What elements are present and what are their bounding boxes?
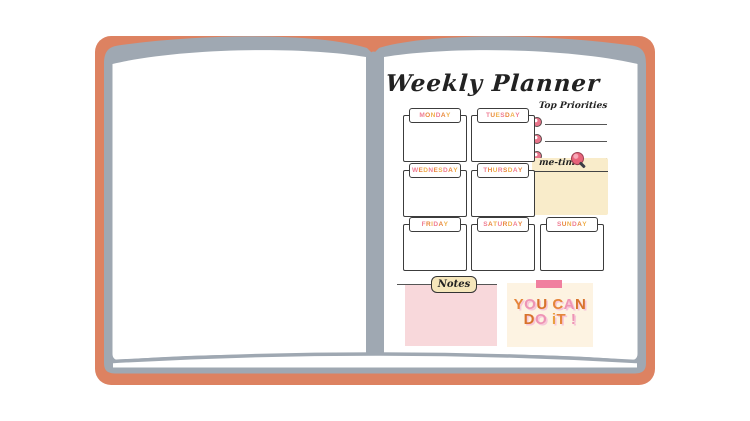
day-cell-sunday: SUNDAY bbox=[540, 217, 604, 269]
top-priorities-label: Top Priorities bbox=[537, 101, 610, 111]
day-banner-label: WEDNESDAY bbox=[409, 163, 461, 178]
notes-tab-label: Notes bbox=[431, 276, 477, 293]
me-time-header-line: me-time bbox=[532, 158, 608, 172]
weekly-planner-page: Weekly Planner MONDAY TUESDAY WEDNESDAY … bbox=[377, 55, 637, 360]
day-banner-label: TUESDAY bbox=[477, 108, 529, 123]
day-cell-tuesday: TUESDAY bbox=[471, 108, 535, 160]
open-notebook-illustration: Weekly Planner MONDAY TUESDAY WEDNESDAY … bbox=[0, 0, 750, 421]
motivation-text-line: YOU CAN bbox=[507, 297, 593, 312]
notebook-graphic bbox=[0, 0, 750, 421]
day-cell-monday: MONDAY bbox=[403, 108, 467, 160]
push-pin-icon bbox=[571, 152, 584, 165]
day-cell-wednesday: WEDNESDAY bbox=[403, 163, 467, 215]
day-banner-label: THURSDAY bbox=[477, 163, 529, 178]
motivation-text-line: DO iT ! bbox=[507, 312, 593, 327]
day-banner-label: SUNDAY bbox=[546, 217, 598, 232]
priority-row bbox=[532, 134, 609, 144]
page-title: Weekly Planner bbox=[376, 70, 610, 97]
notes-area bbox=[405, 285, 497, 346]
day-cell-saturday: SATURDAY bbox=[471, 217, 535, 269]
day-banner-label: SATURDAY bbox=[477, 217, 529, 232]
priority-write-line bbox=[545, 124, 607, 125]
priority-write-line bbox=[545, 141, 607, 142]
motivation-card: YOU CAN DO iT ! bbox=[507, 283, 593, 347]
day-cell-friday: FRIDAY bbox=[403, 217, 467, 269]
me-time-note: me-time bbox=[532, 158, 608, 215]
left-page bbox=[113, 50, 367, 360]
priority-row bbox=[532, 117, 609, 127]
day-cell-thursday: THURSDAY bbox=[471, 163, 535, 215]
tape-icon bbox=[536, 280, 562, 288]
day-banner-label: FRIDAY bbox=[409, 217, 461, 232]
day-banner-label: MONDAY bbox=[409, 108, 461, 123]
